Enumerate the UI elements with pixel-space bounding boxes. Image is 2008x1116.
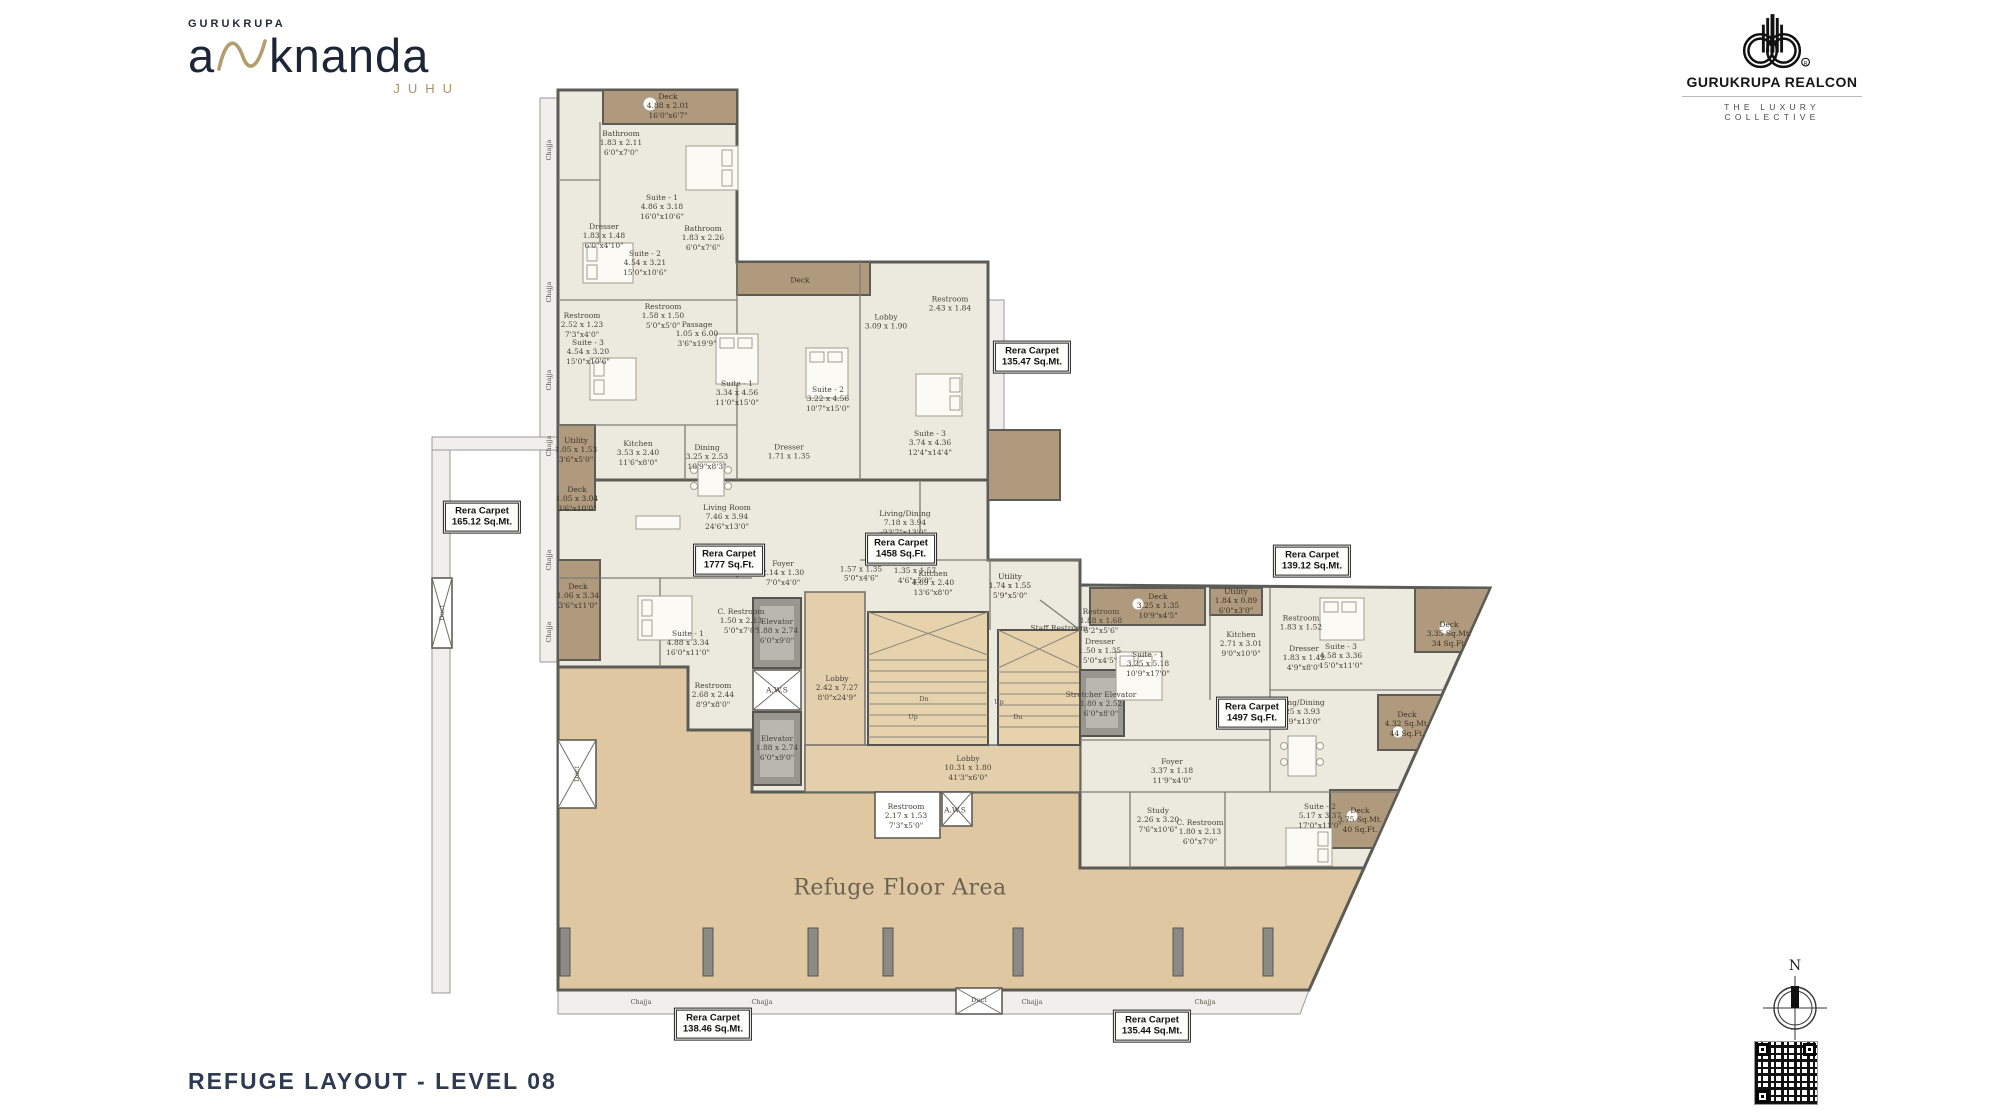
qr-code [1754, 1041, 1818, 1105]
qr-finder-icon [1756, 1043, 1769, 1056]
page-title: REFUGE LAYOUT - LEVEL 08 [188, 1068, 557, 1095]
qr-finder-icon [1756, 1090, 1769, 1103]
compass-icon [1763, 974, 1827, 1042]
refuge-area-label: Refuge Floor Area [793, 876, 1006, 901]
qr-finder-icon [1803, 1043, 1816, 1056]
floor-plan [0, 0, 2008, 1116]
compass: N [1763, 958, 1827, 1047]
page: GURUKRUPA a knanda JUHU R [0, 0, 2008, 1116]
compass-north-label: N [1763, 958, 1827, 974]
